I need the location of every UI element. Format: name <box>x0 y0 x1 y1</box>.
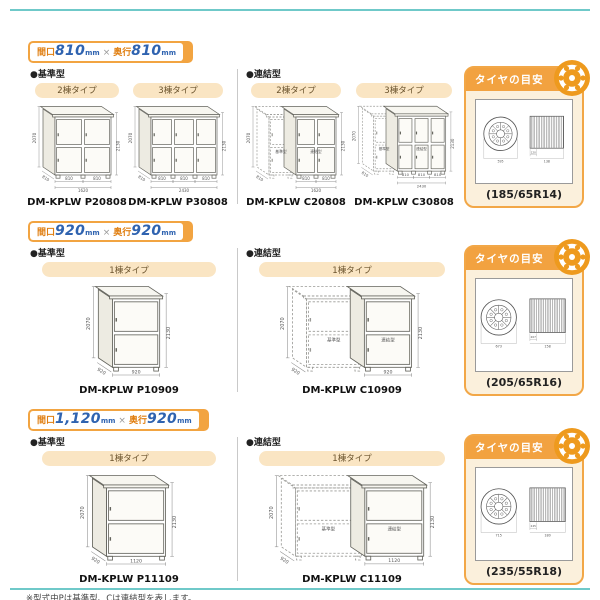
type-tab: 2棟タイプ <box>35 83 119 98</box>
svg-text:810: 810 <box>41 174 51 183</box>
svg-text:連結型: 連結型 <box>381 336 395 343</box>
product-item: 1棟タイプ 基準型連結型21302070920920 DM-KPLW C1090… <box>244 261 460 396</box>
product-row-810: 間口 810 mm × 奥行 810 mm ●基準型 2棟タイプ 2130207… <box>28 40 584 208</box>
linked-type-section: ●連結型 1棟タイプ 基準型連結型21302070920920 DM-KPLW … <box>244 245 460 396</box>
size-badge: 間口 1,120 mm × 奥行 920 mm <box>28 409 209 431</box>
depth-label: 奥行 <box>129 416 147 427</box>
type-tab: 1棟タイプ <box>259 262 445 277</box>
tire-guide-panel: タイヤの目安 595120138 (185/65R14) <box>464 66 584 208</box>
width-unit: mm <box>85 229 100 238</box>
svg-text:2070: 2070 <box>86 317 92 330</box>
standard-type-section: ●基準型 2棟タイプ 213020708108101620810 DM-KPLW… <box>28 66 230 208</box>
svg-text:2070: 2070 <box>80 506 86 519</box>
svg-text:2070: 2070 <box>128 132 133 143</box>
product-item: 2棟タイプ 基準型連結型213020708108101620810 DM-KPL… <box>244 82 348 208</box>
size-badge: 間口 920 mm × 奥行 920 mm <box>28 221 193 243</box>
linked-type-section: ●連結型 2棟タイプ 基準型連結型213020708108101620810 D… <box>244 66 460 208</box>
top-border-rule <box>10 9 590 11</box>
product-item: 2棟タイプ 213020708108101620810 DM-KPLW P208… <box>28 82 126 208</box>
footnotes: ※型式中Pは基準型、Cは連結型を表します。 ※連結型は単独では使用できません。基… <box>26 593 600 600</box>
type-tab: 3棟タイプ <box>133 83 222 98</box>
shed-drawing: 基準型連結型213020708108108102430810 <box>350 101 458 192</box>
tire-diagram-box: 715245180 <box>475 467 573 561</box>
product-item: 3棟タイプ 基準型連結型213020708108108102430810 DM-… <box>348 82 460 208</box>
svg-text:2130: 2130 <box>166 327 172 340</box>
svg-text:673: 673 <box>496 345 502 349</box>
tire-guide-panel: タイヤの目安 673207158 (205/65R16) <box>464 245 584 396</box>
svg-text:基準型: 基準型 <box>379 146 390 151</box>
shed-drawing: 基準型連結型213020701120920 <box>266 469 439 574</box>
model-number: DM-KPLW C20808 <box>246 197 346 208</box>
type-tab: 1棟タイプ <box>259 451 445 466</box>
svg-text:245: 245 <box>531 524 537 528</box>
svg-text:120: 120 <box>530 150 535 154</box>
svg-text:920: 920 <box>90 555 101 565</box>
svg-text:2130: 2130 <box>172 515 178 528</box>
standard-type-section: ●基準型 1棟タイプ 213020701120920 DM-KPLW P1110… <box>28 434 230 585</box>
svg-text:連結型: 連結型 <box>387 525 401 532</box>
shed-drawing: 基準型連結型213020708108101620810 <box>244 101 349 197</box>
svg-text:2070: 2070 <box>246 132 251 143</box>
svg-text:1620: 1620 <box>311 188 322 193</box>
svg-text:810: 810 <box>418 171 426 176</box>
svg-text:158: 158 <box>544 345 550 349</box>
tire-size-label: (185/65R14) <box>466 186 582 206</box>
svg-text:715: 715 <box>496 533 502 537</box>
model-number: DM-KPLW P20808 <box>27 197 127 208</box>
section-label-standard: ●基準型 <box>30 435 230 448</box>
model-number: DM-KPLW P10909 <box>79 385 179 396</box>
product-item: 1棟タイプ 21302070920920 DM-KPLW P10909 <box>28 261 230 396</box>
section-label-standard: ●基準型 <box>30 246 230 259</box>
svg-text:連結型: 連結型 <box>310 148 322 153</box>
svg-text:810: 810 <box>158 176 166 181</box>
svg-text:810: 810 <box>302 176 310 181</box>
model-number: DM-KPLW P30808 <box>128 197 228 208</box>
width-label: 間口 <box>37 48 55 59</box>
width-unit: mm <box>85 49 100 58</box>
shed-drawing: 213020701120920 <box>77 469 181 574</box>
linked-type-section: ●連結型 1棟タイプ 基準型連結型213020701120920 DM-KPLW… <box>244 434 460 585</box>
size-badge: 間口 810 mm × 奥行 810 mm <box>28 41 193 63</box>
product-row-1120: 間口 1,120 mm × 奥行 920 mm ●基準型 1棟タイプ 21302… <box>28 408 584 585</box>
tire-diagram: 595120138 <box>479 113 570 169</box>
svg-text:2130: 2130 <box>429 515 435 528</box>
tire-size-label: (235/55R18) <box>466 563 582 583</box>
svg-text:810: 810 <box>361 170 370 178</box>
type-tab: 2棟タイプ <box>251 83 340 98</box>
section-divider <box>237 248 238 392</box>
svg-text:2070: 2070 <box>32 132 37 143</box>
product-item: 1棟タイプ 基準型連結型213020701120920 DM-KPLW C111… <box>244 450 460 585</box>
tire-guide-title: タイヤの目安 <box>475 253 544 265</box>
section-label-standard: ●基準型 <box>30 67 230 80</box>
svg-text:2130: 2130 <box>341 140 346 151</box>
svg-text:2070: 2070 <box>280 317 286 330</box>
svg-text:1120: 1120 <box>130 558 142 564</box>
product-row-920: 間口 920 mm × 奥行 920 mm ●基準型 1棟タイプ 2130207… <box>28 220 584 397</box>
catalog-page: 間口 810 mm × 奥行 810 mm ●基準型 2棟タイプ 2130207… <box>0 0 600 600</box>
wheel-icon <box>553 59 591 97</box>
depth-label: 奥行 <box>113 48 131 59</box>
svg-text:1620: 1620 <box>78 188 89 193</box>
depth-value: 810 <box>131 43 161 61</box>
svg-text:810: 810 <box>180 176 188 181</box>
svg-text:920: 920 <box>278 555 289 565</box>
depth-value: 920 <box>131 223 161 241</box>
svg-text:595: 595 <box>497 160 503 164</box>
depth-label: 奥行 <box>113 228 131 239</box>
depth-unit: mm <box>177 417 192 426</box>
times-symbol: × <box>118 416 126 427</box>
svg-text:1120: 1120 <box>388 558 400 564</box>
svg-text:810: 810 <box>65 176 73 181</box>
wheel-icon <box>553 238 591 276</box>
svg-text:920: 920 <box>96 367 107 377</box>
shed-drawing: 21302070920920 <box>83 280 175 385</box>
type-tab: 3棟タイプ <box>356 83 452 98</box>
svg-text:920: 920 <box>132 369 141 375</box>
svg-text:2130: 2130 <box>418 327 424 340</box>
tire-diagram: 673207158 <box>476 292 572 358</box>
svg-text:810: 810 <box>402 171 410 176</box>
svg-text:2130: 2130 <box>222 140 227 151</box>
tire-diagram-box: 673207158 <box>475 278 573 372</box>
svg-text:810: 810 <box>93 176 101 181</box>
svg-text:連結型: 連結型 <box>416 146 427 151</box>
tire-diagram-box: 595120138 <box>475 99 573 184</box>
svg-text:2130: 2130 <box>450 138 455 149</box>
footnote-line: ※型式中Pは基準型、Cは連結型を表します。 <box>26 593 600 600</box>
model-number: DM-KPLW C10909 <box>302 385 402 396</box>
width-label: 間口 <box>37 416 55 427</box>
shed-drawing: 213020708108101620810 <box>30 101 124 197</box>
width-unit: mm <box>101 417 116 426</box>
svg-text:基準型: 基準型 <box>327 336 341 343</box>
width-label: 間口 <box>37 228 55 239</box>
type-tab: 1棟タイプ <box>42 262 216 277</box>
product-item: 3棟タイプ 213020708108108102430810 DM-KPLW P… <box>126 82 230 208</box>
svg-text:207: 207 <box>531 335 537 339</box>
svg-text:2430: 2430 <box>417 183 427 188</box>
depth-unit: mm <box>161 49 176 58</box>
shed-drawing: 213020708108108102430810 <box>126 101 230 197</box>
svg-text:810: 810 <box>202 176 210 181</box>
section-divider <box>237 69 238 204</box>
svg-text:基準型: 基準型 <box>275 148 287 153</box>
width-value: 1,120 <box>55 411 101 429</box>
wheel-icon <box>553 427 591 465</box>
svg-text:810: 810 <box>434 171 442 176</box>
width-value: 810 <box>55 43 85 61</box>
type-tab: 1棟タイプ <box>42 451 216 466</box>
model-number: DM-KPLW P11109 <box>79 574 179 585</box>
shed-drawing: 基準型連結型21302070920920 <box>277 280 427 385</box>
times-symbol: × <box>103 48 111 59</box>
svg-text:2070: 2070 <box>352 130 357 141</box>
svg-text:138: 138 <box>543 160 549 164</box>
tire-guide-panel: タイヤの目安 715245180 (235/55R18) <box>464 434 584 585</box>
depth-unit: mm <box>161 229 176 238</box>
section-label-linked: ●連結型 <box>246 67 460 80</box>
product-item: 1棟タイプ 213020701120920 DM-KPLW P11109 <box>28 450 230 585</box>
model-number: DM-KPLW C11109 <box>302 574 402 585</box>
model-number: DM-KPLW C30808 <box>354 197 454 208</box>
svg-text:2430: 2430 <box>179 188 190 193</box>
svg-text:920: 920 <box>383 369 392 375</box>
svg-text:810: 810 <box>137 174 147 183</box>
tire-diagram: 715245180 <box>476 481 572 547</box>
svg-text:2130: 2130 <box>116 140 121 151</box>
section-label-linked: ●連結型 <box>246 246 460 259</box>
width-value: 920 <box>55 223 85 241</box>
depth-value: 920 <box>147 411 177 429</box>
times-symbol: × <box>103 228 111 239</box>
tire-size-label: (205/65R16) <box>466 374 582 394</box>
svg-text:180: 180 <box>544 533 550 537</box>
section-divider <box>237 437 238 581</box>
bottom-border-rule <box>10 588 590 590</box>
tire-guide-title: タイヤの目安 <box>475 74 544 86</box>
svg-text:基準型: 基準型 <box>321 525 335 532</box>
standard-type-section: ●基準型 1棟タイプ 21302070920920 DM-KPLW P10909 <box>28 245 230 396</box>
svg-text:810: 810 <box>322 176 330 181</box>
svg-text:920: 920 <box>290 367 301 377</box>
svg-text:2070: 2070 <box>269 506 275 519</box>
section-label-linked: ●連結型 <box>246 435 460 448</box>
svg-text:810: 810 <box>255 174 265 183</box>
tire-guide-title: タイヤの目安 <box>475 442 544 454</box>
